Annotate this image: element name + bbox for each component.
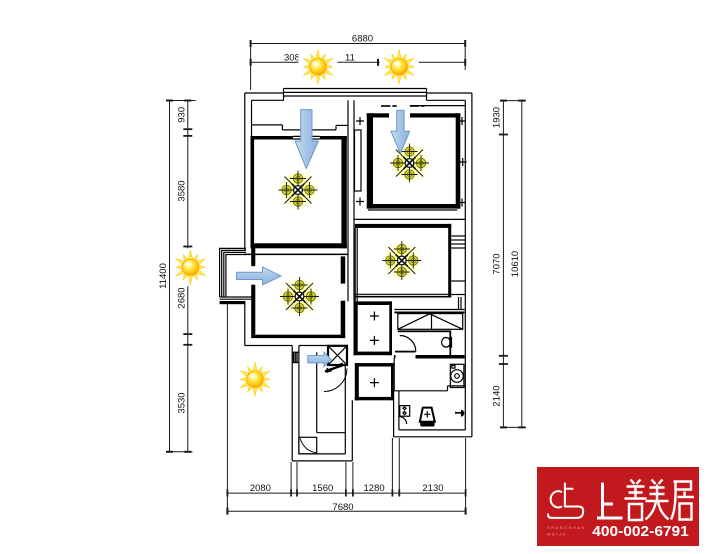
svg-text:930: 930: [177, 107, 188, 123]
svg-text:2680: 2680: [177, 287, 188, 308]
svg-text:7070: 7070: [492, 253, 503, 274]
svg-text:SHANGSHAN: SHANGSHAN: [547, 525, 586, 530]
svg-text:2140: 2140: [492, 385, 503, 406]
svg-text:3580: 3580: [177, 180, 188, 201]
svg-text:3530: 3530: [177, 392, 188, 413]
svg-text:2080: 2080: [250, 483, 271, 494]
svg-text:10610: 10610: [510, 251, 521, 277]
svg-text:11400: 11400: [158, 263, 169, 289]
svg-text:1930: 1930: [492, 107, 503, 128]
svg-text:2130: 2130: [422, 483, 443, 494]
svg-text:1560: 1560: [312, 483, 333, 494]
svg-text:400-002-6791: 400-002-6791: [592, 523, 689, 540]
svg-text:7680: 7680: [332, 502, 353, 513]
svg-text:1280: 1280: [364, 483, 385, 494]
svg-text:11: 11: [345, 53, 355, 64]
svg-text:6880: 6880: [352, 34, 373, 45]
svg-text:WEIJU: WEIJU: [547, 531, 567, 536]
